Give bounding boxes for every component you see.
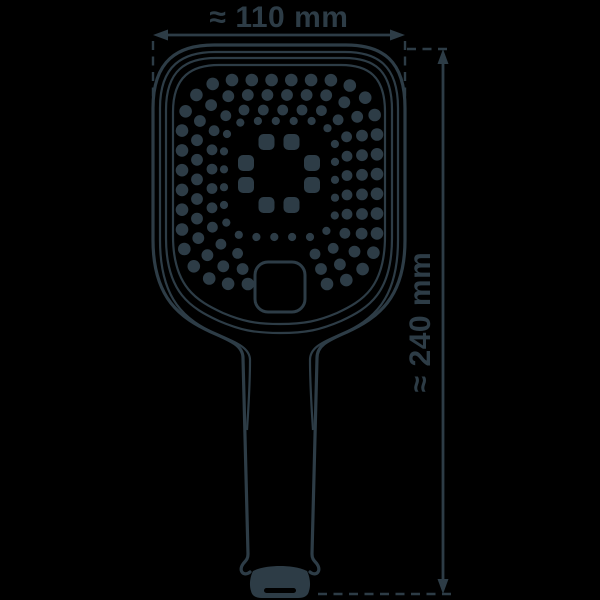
- arrowhead-up-icon: [438, 49, 449, 64]
- spray-nozzle: [310, 249, 321, 260]
- spray-nozzle: [188, 260, 201, 273]
- face-ring-inner: [173, 65, 385, 324]
- spray-nozzle: [367, 246, 380, 259]
- spray-nozzle: [297, 105, 308, 116]
- spray-nozzle: [351, 111, 363, 123]
- center-nozzle: [304, 177, 320, 193]
- spray-nozzle: [236, 119, 244, 127]
- spray-nozzle: [321, 278, 334, 291]
- spray-nozzle: [342, 151, 353, 162]
- spray-nozzle: [270, 233, 278, 241]
- spray-nozzle: [368, 109, 381, 122]
- spray-nozzle: [356, 189, 368, 201]
- spray-nozzle: [356, 263, 369, 276]
- spray-nozzle: [242, 278, 255, 291]
- spray-nozzle: [239, 105, 250, 116]
- spray-nozzle: [192, 232, 204, 244]
- spray-nozzle: [308, 117, 316, 125]
- spray-nozzle: [235, 231, 243, 239]
- spray-nozzle: [207, 144, 218, 155]
- arrowhead-left-icon: [153, 30, 168, 41]
- spray-nozzle: [340, 228, 351, 239]
- spray-nozzle: [246, 74, 259, 87]
- spray-nozzle: [176, 184, 189, 197]
- shower-head-technical-drawing: ≈ 110 mm ≈ 240 mm: [0, 0, 600, 600]
- spray-nozzle: [191, 174, 203, 186]
- spray-nozzle: [328, 243, 339, 254]
- center-nozzle: [284, 197, 300, 213]
- spray-nozzle: [325, 74, 338, 87]
- spray-nozzle: [371, 128, 384, 141]
- spray-nozzle-dots: [176, 74, 384, 291]
- spray-nozzle: [359, 91, 372, 104]
- spray-nozzle: [222, 219, 230, 227]
- width-dimension-label: ≈ 110 mm: [210, 1, 349, 34]
- spray-nozzle: [306, 233, 314, 241]
- spray-nozzle: [356, 208, 368, 220]
- arrowhead-down-icon: [438, 579, 449, 594]
- spray-nozzle: [176, 124, 189, 137]
- spray-nozzle: [344, 79, 357, 92]
- spray-nozzle: [190, 89, 203, 102]
- spray-nozzle: [356, 228, 368, 240]
- spray-nozzle: [290, 117, 298, 125]
- spray-nozzle: [178, 243, 191, 256]
- spray-nozzle: [272, 117, 280, 125]
- spray-nozzle: [176, 203, 189, 216]
- spray-nozzle: [223, 130, 231, 138]
- spray-nozzle: [176, 164, 189, 177]
- spray-nozzle: [216, 239, 227, 250]
- spray-nozzle: [220, 201, 228, 209]
- spray-nozzle: [371, 148, 384, 161]
- spray-nozzle: [179, 105, 192, 118]
- mode-button: [255, 262, 305, 312]
- shower-head: [153, 45, 405, 598]
- center-nozzle-cluster: [238, 134, 320, 213]
- spray-nozzle: [331, 158, 339, 166]
- spray-nozzle: [334, 259, 346, 271]
- spray-nozzle: [338, 96, 350, 108]
- spray-nozzle: [333, 114, 344, 125]
- spray-nozzle: [220, 147, 228, 155]
- height-dimension-label: ≈ 240 mm: [404, 252, 437, 393]
- spray-nozzle: [342, 170, 353, 181]
- spray-nozzle: [331, 140, 339, 148]
- spray-nozzle: [301, 89, 313, 101]
- spray-nozzle: [252, 233, 260, 241]
- spray-nozzle: [356, 130, 368, 142]
- center-nozzle: [304, 155, 320, 171]
- spray-nozzle: [265, 74, 278, 87]
- spray-nozzle: [220, 110, 231, 121]
- center-nozzle: [259, 134, 275, 150]
- shower-head-outline: [153, 45, 405, 574]
- spray-nozzle: [371, 168, 384, 181]
- spray-nozzle: [242, 89, 254, 101]
- spray-nozzle: [285, 74, 298, 87]
- center-nozzle: [259, 197, 275, 213]
- spray-nozzle: [331, 176, 339, 184]
- spray-nozzle: [315, 263, 327, 275]
- hose-connector: [250, 566, 310, 598]
- spray-nozzle: [262, 89, 274, 101]
- spray-nozzle: [320, 89, 332, 101]
- spray-nozzle: [288, 233, 296, 241]
- spray-nozzle: [207, 183, 218, 194]
- spray-nozzle: [205, 99, 217, 111]
- spray-nozzle: [222, 90, 234, 102]
- spray-nozzle: [254, 117, 262, 125]
- spray-nozzle: [222, 278, 235, 291]
- spray-nozzle: [322, 227, 330, 235]
- spray-nozzle: [226, 74, 239, 87]
- spray-nozzle: [356, 169, 368, 181]
- spray-nozzle: [349, 246, 361, 258]
- center-nozzle: [238, 155, 254, 171]
- spray-nozzle: [191, 213, 203, 225]
- spray-nozzle: [371, 188, 384, 201]
- spray-nozzle: [305, 74, 318, 87]
- spray-nozzle: [331, 211, 339, 219]
- spray-nozzle: [316, 105, 327, 116]
- spray-nozzle: [202, 249, 214, 261]
- connector-slot: [264, 588, 296, 593]
- spray-nozzle: [176, 144, 189, 157]
- spray-nozzle: [323, 124, 331, 132]
- spray-nozzle: [371, 207, 384, 220]
- spray-nozzle: [258, 105, 269, 116]
- spray-nozzle: [217, 260, 229, 272]
- spray-nozzle: [341, 131, 352, 142]
- arrowhead-right-icon: [390, 30, 405, 41]
- spray-nozzle: [281, 89, 293, 101]
- center-nozzle: [238, 177, 254, 193]
- spray-nozzle: [207, 222, 218, 233]
- spray-nozzle: [342, 209, 353, 220]
- spray-nozzle: [207, 164, 218, 175]
- spray-nozzle: [220, 165, 228, 173]
- spray-nozzle: [191, 154, 203, 166]
- spray-nozzle: [191, 193, 203, 205]
- spray-nozzle: [176, 223, 189, 236]
- spray-nozzle: [331, 194, 339, 202]
- spray-nozzle: [371, 227, 384, 240]
- spray-nozzle: [207, 202, 218, 213]
- spray-nozzle: [340, 274, 353, 287]
- spray-nozzle: [220, 183, 228, 191]
- spray-nozzle: [191, 134, 203, 146]
- spray-nozzle: [237, 263, 249, 275]
- spray-nozzle: [232, 248, 243, 259]
- spray-nozzle: [342, 190, 353, 201]
- spray-nozzle: [356, 149, 368, 161]
- spray-nozzle: [203, 272, 216, 285]
- spray-nozzle: [209, 125, 220, 136]
- center-nozzle: [284, 134, 300, 150]
- spray-nozzle: [277, 105, 288, 116]
- spray-nozzle: [194, 115, 206, 127]
- spray-nozzle: [206, 78, 219, 91]
